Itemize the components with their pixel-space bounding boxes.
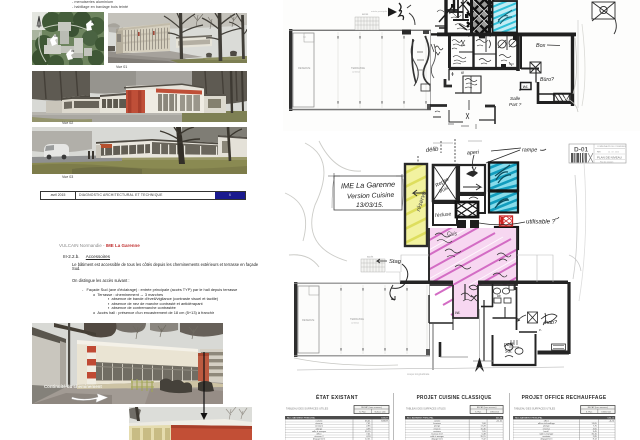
svg-text:ÉTAT EXISTANT: ÉTAT EXISTANT (316, 394, 358, 401)
svg-text:Différentiel: Différentiel (490, 410, 500, 413)
svg-text:S. Plan: S. Plan (359, 411, 365, 413)
svg-text:rampe: rampe (522, 148, 537, 154)
svg-text:Surface utile: Surface utile (374, 410, 386, 413)
svg-text:RESERVE: RESERVE (302, 318, 315, 322)
svg-text:PROJET OFFICE RECHAUFFAGE: PROJET OFFICE RECHAUFFAGE (522, 395, 607, 401)
svg-text:accès: accès (367, 256, 374, 259)
svg-text:TERRASSE: TERRASSE (350, 317, 364, 321)
svg-text:IME La Garenne: IME La Garenne (341, 180, 396, 191)
svg-text:13/03/15.: 13/03/15. (356, 202, 384, 209)
svg-text:TABLEAU DES SURFACES UTILES: TABLEAU DES SURFACES UTILES (286, 407, 328, 411)
svg-text:sb: sb (494, 66, 498, 70)
svg-text:D-01: D-01 (574, 147, 588, 154)
svg-text:sol béton: sol béton (351, 322, 359, 325)
svg-text:aperi: aperi (467, 150, 480, 157)
svg-text:03: 03 (71, 49, 75, 53)
svg-text:REI: REI (597, 152, 601, 154)
svg-text:TABLEAU DES SURFACES UTILES: TABLEAU DES SURFACES UTILES (406, 407, 446, 410)
svg-text:RESERVE: RESERVE (298, 66, 311, 70)
svg-text:+6,25: +6,25 (609, 420, 615, 422)
svg-text:RDC BATIMENT PRINCIPAL: RDC BATIMENT PRINCIPAL (287, 417, 316, 420)
svg-text:PLAN DE NIVEAU: PLAN DE NIVEAU (597, 156, 622, 160)
svg-text:633,87: 633,87 (381, 418, 388, 420)
svg-text:S. Plan: S. Plan (475, 411, 481, 413)
svg-text:Continuité du cheminement: Continuité du cheminement (44, 384, 102, 389)
svg-text:Büro?: Büro? (540, 77, 554, 83)
svg-text:RDC BATIMENT PRINCIPAL: RDC BATIMENT PRINCIPAL (407, 417, 434, 420)
svg-text:Différentiel: Différentiel (602, 410, 612, 413)
svg-text:640,12: 640,12 (608, 418, 615, 420)
svg-text:l'écluse: l'écluse (435, 211, 452, 219)
svg-text:01: 01 (91, 20, 95, 24)
svg-text:Plan de situation: Plan de situation (600, 160, 613, 163)
svg-text:accès: accès (362, 13, 369, 16)
svg-text:TERRASSE: TERRASSE (351, 66, 365, 70)
svg-text:02: 02 (54, 34, 58, 38)
svg-text:Salle: Salle (510, 96, 521, 101)
svg-text:utilisable ?: utilisable ? (526, 219, 556, 226)
svg-text:Version Cuisine: Version Cuisine (347, 192, 395, 201)
svg-text:Part ?: Part ? (509, 102, 522, 107)
svg-text:+11,51: +11,51 (496, 420, 503, 422)
svg-text:RECAP (hors annexes): RECAP (hors annexes) (361, 406, 382, 409)
svg-text:Box: Box (536, 43, 546, 49)
svg-text:PROJET CUISINE CLASSIQUE: PROJET CUISINE CLASSIQUE (417, 395, 492, 401)
svg-text:t8: t8 (461, 71, 464, 75)
svg-text:sol béton: sol béton (352, 71, 360, 74)
svg-text:coupe longitudinale: coupe longitudinale (407, 372, 430, 376)
svg-text:Cuis: Cuis (447, 232, 458, 238)
svg-text:WL: WL (523, 84, 529, 89)
svg-text:c.: c. (539, 327, 542, 332)
svg-text:RDC BATIMENT PRINCIPAL: RDC BATIMENT PRINCIPAL (515, 417, 543, 420)
svg-text:Stag: Stag (389, 259, 402, 265)
svg-text:entrée principale: entrée principale (371, 10, 388, 13)
svg-text:petit: petit (503, 342, 514, 348)
svg-text:S. Plan: S. Plan (586, 411, 592, 413)
svg-text:633,87: 633,87 (381, 421, 388, 423)
svg-text:délib: délib (426, 147, 440, 154)
svg-text:RECAP (hors annexes): RECAP (hors annexes) (477, 406, 497, 409)
svg-text:645,38: 645,38 (496, 418, 503, 420)
svg-text:TABLEAU DES SURFACES UTILES: TABLEAU DES SURFACES UTILES (514, 406, 556, 410)
svg-text:14 . 03 . 2015: 14 . 03 . 2015 (608, 152, 619, 154)
svg-text:COMMUNAUTE DE COMMUNES: COMMUNAUTE DE COMMUNES (597, 145, 626, 148)
svg-text:sal.: sal. (505, 349, 513, 355)
svg-text:sas: sas (303, 37, 306, 39)
svg-text:bb: bb (497, 294, 501, 298)
svg-text:RECAP (hors annexes): RECAP (hors annexes) (588, 406, 609, 409)
svg-text:WL: WL (455, 311, 460, 315)
